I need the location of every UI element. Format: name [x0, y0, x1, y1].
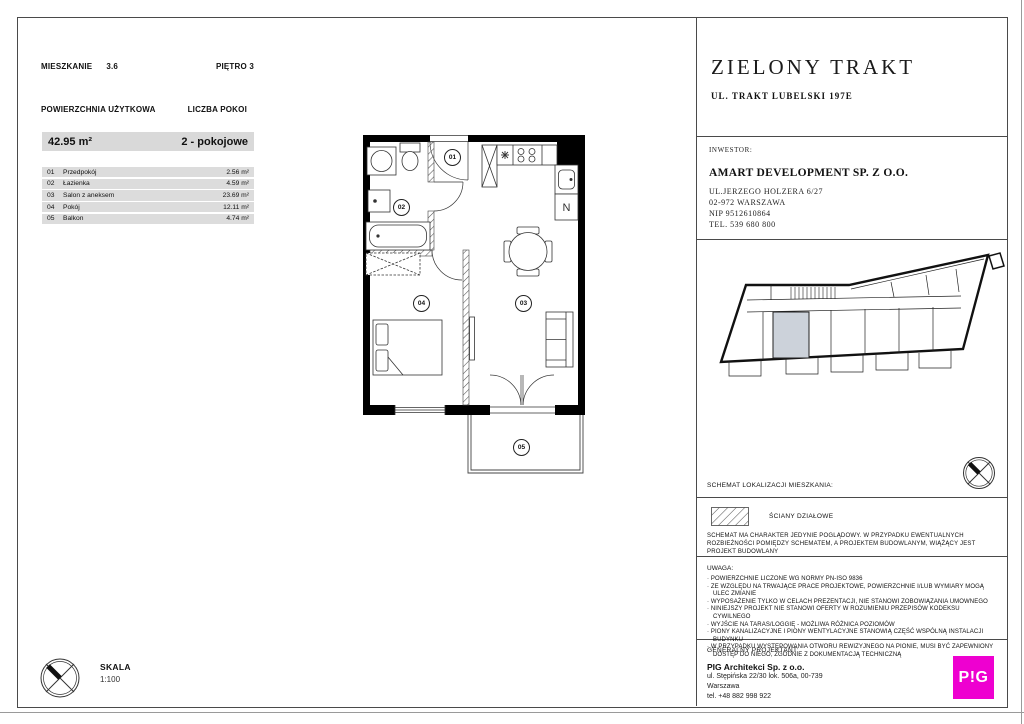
room-name: Pokój	[63, 204, 223, 211]
plan-sheet: MIESZKANIE 3.6 PIĘTRO 3 POWIERZCHNIA UŻY…	[0, 0, 1024, 724]
room-number: 05	[47, 215, 63, 222]
note-item: · POWIERZCHNIE LICZONE WG NORMY PN-ISO 9…	[707, 576, 999, 584]
north-compass-icon	[38, 656, 82, 700]
room-area: 4.59 m²	[226, 180, 249, 187]
designer-address: ul. Stępińska 22/30 lok. 506a, 00-739	[707, 673, 823, 680]
room-label-02: 02	[393, 199, 410, 216]
room-area: 2.56 m²	[226, 169, 249, 176]
partition-wall-swatch	[711, 507, 749, 526]
table-row: 03 Salon z aneksem 23.69 m²	[42, 190, 254, 200]
investor-section: INWESTOR: AMART DEVELOPMENT SP. Z O.O. U…	[697, 137, 1007, 240]
note-item: · NINIEJSZY PROJEKT NIE STANOWI OFERTY W…	[707, 606, 999, 621]
investor-address: 02-972 WARSZAWA	[709, 198, 786, 207]
designer-address: Warszawa	[707, 683, 739, 690]
rooms-count-label: LICZBA POKOI	[188, 105, 247, 114]
room-number: 02	[47, 180, 63, 187]
locator-label: SCHEMAT LOKALIZACJI MIESZKANIA:	[707, 482, 833, 489]
room-area: 4.74 m²	[226, 215, 249, 222]
note-item: · ZE WZGLĘDU NA TRWAJĄCE PRACE PROJEKTOW…	[707, 584, 999, 599]
bathroom-door	[434, 182, 463, 211]
wardrobe	[366, 253, 420, 275]
room-table: 01 Przedpokój 2.56 m² 02 Łazienka 4.59 m…	[42, 167, 254, 225]
room-number: 04	[47, 204, 63, 211]
investor-name: AMART DEVELOPMENT SP. Z O.O.	[709, 167, 908, 179]
notes-title: UWAGA:	[707, 565, 733, 572]
balcony-door	[490, 375, 555, 413]
room-number: 03	[47, 192, 63, 199]
designer-phone: tel. +48 882 998 922	[707, 693, 771, 700]
room-label-05: 05	[513, 439, 530, 456]
room-name: Salon z aneksem	[63, 192, 223, 199]
floor-plan-drawing: N	[355, 128, 595, 488]
rooms-count-value: 2 - pokojowe	[181, 136, 248, 148]
room-number: 01	[47, 169, 63, 176]
locator-section: SCHEMAT LOKALIZACJI MIESZKANIA:	[697, 240, 1007, 498]
apartment-number: 3.6	[106, 62, 118, 71]
paper-edge	[1021, 0, 1022, 724]
project-address: UL. TRAKT LUBELSKI 197E	[711, 91, 853, 101]
highlighted-unit	[773, 312, 809, 358]
designer-name: PIG Architekci Sp. z o.o.	[707, 662, 804, 672]
building-locator-plan	[701, 242, 1006, 452]
designer-section: GENERALNY PROJEKTANT: PIG Architekci Sp.…	[697, 640, 1007, 706]
toilet	[400, 143, 420, 171]
title-block-sidebar: ZIELONY TRAKT UL. TRAKT LUBELSKI 197E IN…	[696, 17, 1007, 706]
table-row: 05 Balkon 4.74 m²	[42, 214, 254, 224]
room-name: Balkon	[63, 215, 226, 222]
washing-machine	[368, 190, 390, 212]
room-area: 23.69 m²	[223, 192, 249, 199]
bathtub	[366, 222, 430, 250]
notes-section: UWAGA: · POWIERZCHNIE LICZONE WG NORMY P…	[697, 557, 1007, 640]
tall-cabinet	[482, 145, 497, 187]
kitchen-sink	[555, 165, 578, 194]
investor-phone: TEL. 539 680 800	[709, 220, 776, 229]
disclaimer-text: SCHEMAT MA CHARAKTER JEDYNIE POGLĄDOWY. …	[707, 532, 993, 556]
table-row: 02 Łazienka 4.59 m²	[42, 179, 254, 189]
bedroom-window	[395, 405, 445, 415]
svg-text:N: N	[563, 202, 571, 214]
washbasin	[367, 147, 396, 175]
legend-label: ŚCIANY DZIAŁOWE	[769, 513, 833, 520]
apartment-label: MIESZKANIE	[41, 62, 92, 71]
room-name: Łazienka	[63, 180, 226, 187]
project-header: ZIELONY TRAKT UL. TRAKT LUBELSKI 197E	[697, 17, 1007, 137]
room-area: 12.11 m²	[223, 204, 249, 211]
room-name: Przedpokój	[63, 169, 226, 176]
table-row: 04 Pokój 12.11 m²	[42, 202, 254, 212]
table-row: 01 Przedpokój 2.56 m²	[42, 167, 254, 177]
north-compass-icon	[961, 455, 997, 491]
room-label-04: 04	[413, 295, 430, 312]
total-area-value: 42.95 m²	[48, 136, 92, 148]
pig-logo: P!G	[953, 656, 994, 699]
columns-header: POWIERZCHNIA UŻYTKOWA LICZBA POKOI	[41, 105, 247, 114]
project-name: ZIELONY TRAKT	[711, 55, 915, 80]
investor-nip: NIP 9512610864	[709, 209, 771, 218]
room-label-03: 03	[515, 295, 532, 312]
floor-label: PIĘTRO 3	[216, 62, 254, 71]
investor-label: INWESTOR:	[709, 146, 752, 154]
tv	[470, 317, 475, 360]
apartment-header: MIESZKANIE 3.6 PIĘTRO 3	[41, 62, 254, 71]
area-summary-bar: 42.95 m² 2 - pokojowe	[42, 132, 254, 151]
paper-edge	[0, 712, 1024, 713]
room-label-01: 01	[444, 149, 461, 166]
sofa	[546, 312, 573, 367]
dining-table	[504, 227, 552, 276]
legend-section: ŚCIANY DZIAŁOWE SCHEMAT MA CHARAKTER JED…	[697, 498, 1007, 557]
designer-label: GENERALNY PROJEKTANT:	[707, 647, 799, 654]
scale-value: 1:100	[100, 675, 120, 684]
scale-label: SKALA	[100, 662, 131, 672]
bed	[373, 320, 442, 375]
bedroom-door	[432, 250, 462, 280]
investor-address: UL.JERZEGO HOLZERA 6/27	[709, 187, 823, 196]
fridge: N	[555, 194, 578, 220]
usable-area-label: POWIERZCHNIA UŻYTKOWA	[41, 105, 156, 114]
